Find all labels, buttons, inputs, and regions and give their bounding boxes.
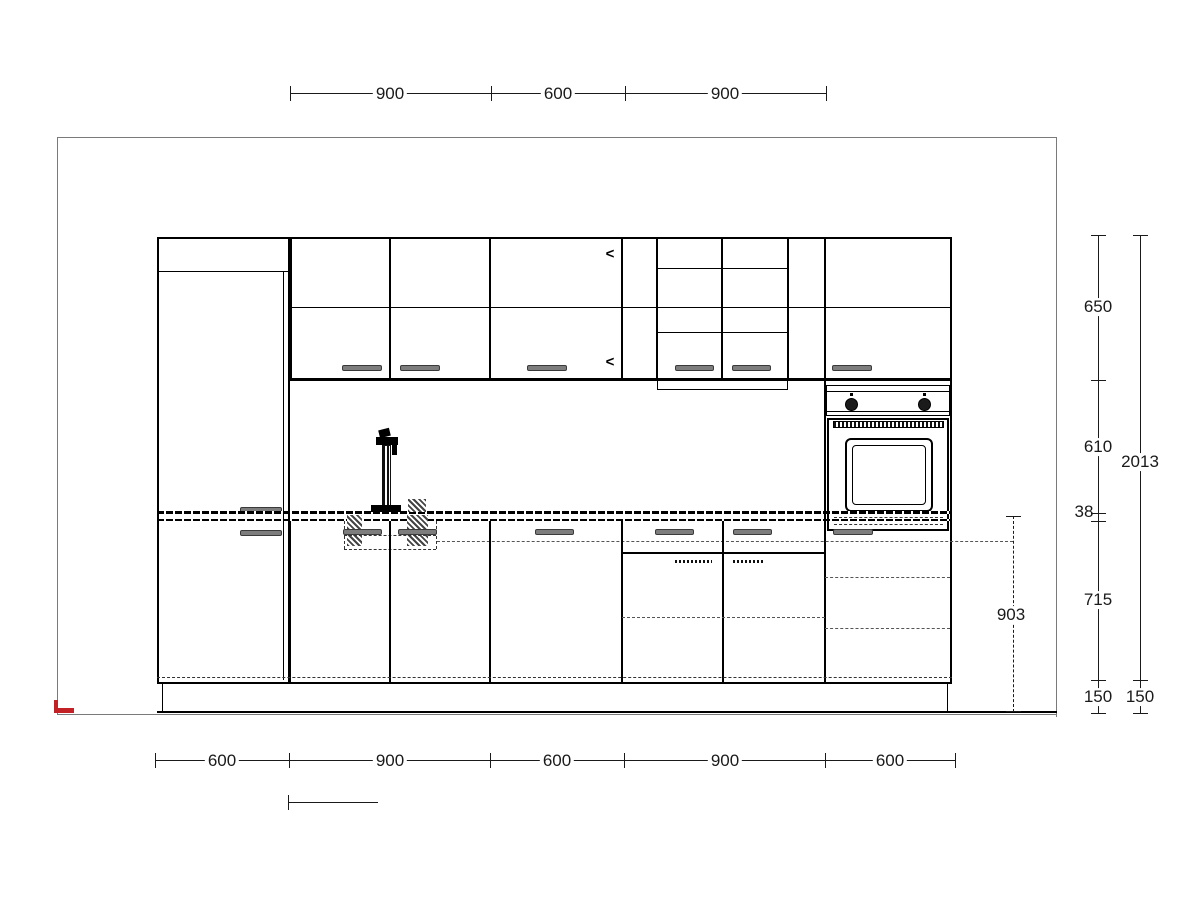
faucet-base-plate: [371, 505, 401, 512]
wall-unit-a-right-door-handle: [400, 365, 440, 371]
oven-indicator-dot: [850, 393, 853, 396]
faucet-spout-tip: [392, 443, 397, 455]
dim-tick: [1091, 380, 1106, 381]
dim-label-top-0: 900: [373, 85, 407, 103]
sink-base-door-divider: [389, 521, 391, 682]
shelf-unit-left-door-handle: [675, 365, 714, 371]
drawer-unit-divider: [722, 521, 724, 682]
dim-line-right-outer: [1140, 235, 1141, 713]
faucet-body: [382, 445, 391, 507]
oven-column-left: [824, 237, 826, 682]
dim-tick: [155, 753, 156, 768]
dim-tick: [1091, 713, 1106, 714]
pullout-hidden-handle-right: [733, 560, 763, 563]
oven-knob-icon: [918, 398, 931, 411]
dim-label-right-inner-0: 650: [1081, 298, 1115, 316]
sink-base-right-door-handle: [398, 529, 437, 535]
dim-tick: [826, 86, 827, 101]
dim-label-bottom-0: 600: [205, 752, 239, 770]
oven-control-panel-top-line: [826, 391, 950, 392]
dim-label-top-2: 900: [708, 85, 742, 103]
tall-cabinet-door-gap: [283, 271, 284, 680]
wall-unit-a-divider: [389, 237, 391, 380]
dim-label-right-inner-4: 150: [1081, 688, 1115, 706]
dim-tick: [1091, 513, 1106, 514]
oven-vent-line: [834, 517, 943, 518]
base-divider-drawerunit-left: [621, 521, 623, 682]
dim-tick: [825, 753, 826, 768]
dim-label-right-inner-3: 715: [1081, 591, 1115, 609]
drawer-front-line: [622, 552, 825, 554]
shelf-unit-left-panel: [656, 237, 658, 380]
oven-base-hidden-line-2: [825, 628, 950, 629]
oven-window-inner: [852, 445, 926, 505]
dim-tick: [1133, 713, 1148, 714]
dim-tick: [1133, 235, 1148, 236]
room-floor-line: [57, 714, 1057, 715]
dim-label-bottom-2: 600: [540, 752, 574, 770]
sink-base-left-door-handle: [343, 529, 382, 535]
worktop-hidden-line: [437, 541, 1013, 542]
dim-tick: [1091, 521, 1106, 522]
wall-unit-a-left-door-handle: [342, 365, 382, 371]
dim-label-bottom-1: 900: [373, 752, 407, 770]
red-corner-marker-vertical: [54, 700, 58, 713]
base-carcass-bottom: [157, 682, 952, 684]
oven-base-drawer-handle: [833, 529, 873, 535]
room-wall-right: [1056, 137, 1057, 717]
oven-column-right: [950, 237, 952, 682]
dim-tick: [290, 86, 291, 101]
sink-bowl-hidden-right: [436, 521, 437, 549]
dim-label-right-outer-1: 150: [1123, 688, 1157, 706]
floor-line: [157, 711, 1057, 713]
dim-tick: [1006, 516, 1021, 517]
oven-vent-line: [834, 524, 943, 525]
dim-label-top-1: 600: [541, 85, 575, 103]
dim-label-worktop-height: 903: [994, 606, 1028, 624]
base-divider-600: [489, 521, 491, 682]
wall-unit-b-door-handle: [527, 365, 567, 371]
drawer-unit-hidden-line: [622, 617, 825, 618]
plinth-right-edge: [947, 684, 948, 711]
dim-label-right-outer-0: 2013: [1118, 453, 1162, 471]
base-divider-tall: [289, 521, 291, 682]
dim-tick: [289, 753, 290, 768]
dim-tick: [1006, 711, 1021, 712]
worktop-top-edge: [157, 511, 952, 514]
oven-door-handle: [833, 421, 944, 428]
dim-label-bottom-3: 900: [708, 752, 742, 770]
pullout-hidden-handle-left: [675, 560, 712, 563]
plinth-left-edge: [162, 684, 163, 711]
dim-tick: [1091, 680, 1106, 681]
drawer-left-handle: [655, 529, 694, 535]
oven-knob-icon: [845, 398, 858, 411]
door-swing-icon: <: [606, 354, 615, 371]
oven-indicator-dot: [923, 393, 926, 396]
dim-tick: [288, 795, 289, 810]
unfinished-dim-line: [288, 802, 378, 803]
wall-unit-b-right: [621, 237, 623, 380]
dim-label-bottom-4: 600: [873, 752, 907, 770]
tall-cabinet-lower-door-handle: [240, 530, 282, 536]
dim-tick: [624, 753, 625, 768]
shelf-line-lower: [657, 332, 788, 333]
tall-cabinet-cornice-line: [157, 271, 290, 272]
dim-tick: [491, 86, 492, 101]
base-left-end: [157, 521, 159, 682]
wall-unit-a-left: [290, 237, 292, 380]
tall-cabinet: [157, 237, 290, 684]
kitchen-elevation-drawing: < <: [0, 0, 1200, 900]
door-swing-icon: <: [606, 246, 615, 263]
dim-tick: [1133, 680, 1148, 681]
oven-wall-unit-door-handle: [832, 365, 872, 371]
room-wall-top: [57, 137, 1057, 138]
shelf-unit-right-panel: [787, 237, 789, 380]
shelf-line-upper: [657, 268, 788, 269]
dim-label-right-inner-1: 610: [1081, 438, 1115, 456]
base-600-door-handle: [535, 529, 574, 535]
shelf-unit-divider: [721, 237, 723, 380]
oven-base-hidden-line-1: [825, 577, 950, 578]
shelf-unit-right-door-handle: [732, 365, 771, 371]
wall-unit-a-right: [489, 237, 491, 380]
dim-label-right-inner-2: 38: [1072, 503, 1097, 521]
worktop-bottom-edge: [157, 519, 952, 521]
dim-tick: [1091, 235, 1106, 236]
dim-tick: [490, 753, 491, 768]
base-door-bottom-gap: [157, 677, 952, 678]
dim-tick: [625, 86, 626, 101]
dim-tick: [955, 753, 956, 768]
oven-control-panel-bottom-line: [826, 411, 950, 412]
sink-drain-knob: [408, 499, 426, 512]
room-wall-left: [57, 137, 58, 715]
under-cabinet-light-pelmet: [657, 380, 788, 390]
drawer-right-handle: [733, 529, 772, 535]
